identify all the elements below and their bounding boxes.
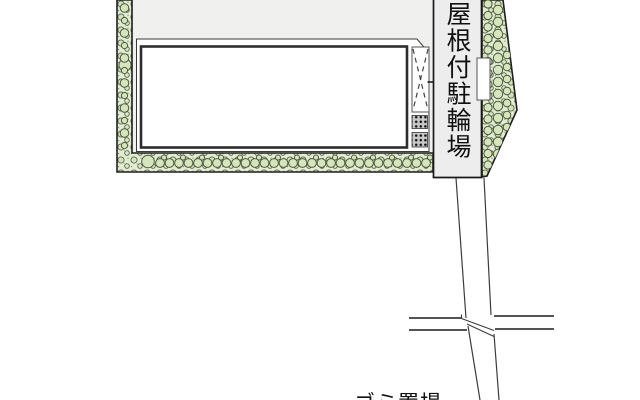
road-edge-right-lower bbox=[494, 334, 499, 400]
site-plan-page: 屋根付駐輪場 ゴミ置場 bbox=[0, 0, 640, 400]
road-edge-left-lower bbox=[468, 326, 480, 400]
trash-area-label: ゴミ置場 bbox=[354, 387, 442, 400]
gravel-pad-lower bbox=[412, 133, 428, 148]
covered-bicycle-parking-strip bbox=[412, 47, 429, 112]
covered-bicycle-parking-label: 屋根付駐輪場 bbox=[433, 1, 482, 178]
road-edge-left-upper bbox=[456, 178, 466, 318]
road-edge-right-upper bbox=[484, 178, 491, 315]
gravel-pad-upper bbox=[412, 116, 428, 129]
site-plan-drawing bbox=[0, 0, 640, 400]
building-footprint bbox=[141, 47, 407, 148]
road bbox=[409, 178, 554, 400]
